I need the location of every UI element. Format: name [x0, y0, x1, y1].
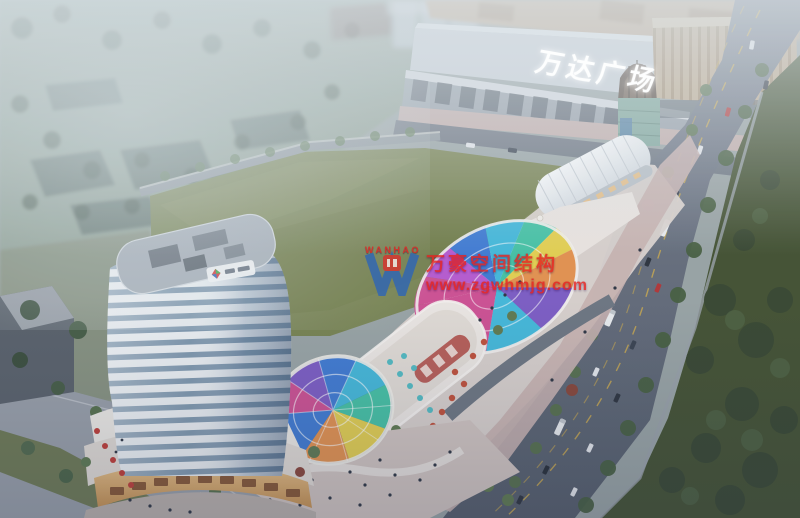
rendering-canvas: 万达广场 [0, 0, 800, 518]
aerial-rendering: 万达广场 WANHAO 万豪空间结构 www.zgwhmjg.com [0, 0, 800, 518]
dusk-overlay [0, 300, 800, 518]
